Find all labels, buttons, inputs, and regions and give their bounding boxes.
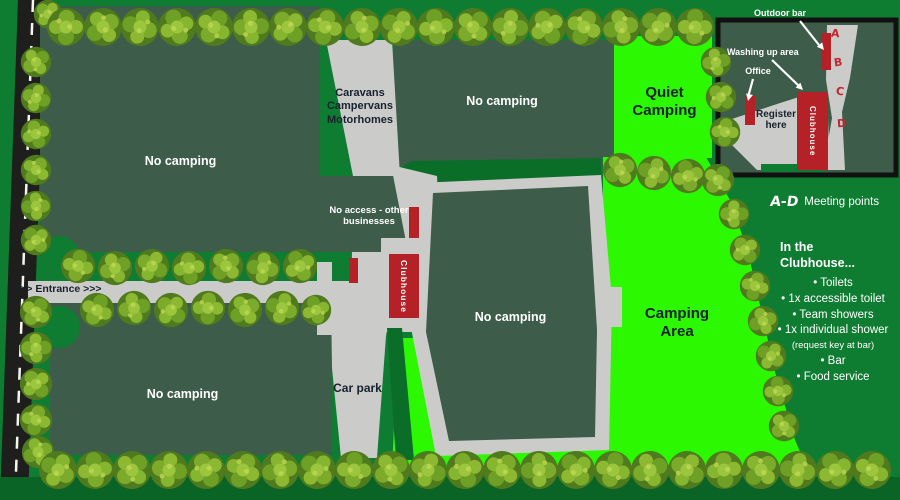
caravans-road-label: Caravans Campervans Motorhomes (318, 87, 402, 127)
no-camping-label-top-left: No camping (88, 154, 273, 169)
clubhouse-info-item: • Toilets (770, 276, 896, 291)
meeting-point-A: A (830, 27, 840, 41)
outdoor-bar-label: Outdoor bar (752, 8, 808, 18)
register-here-label: Register here (752, 109, 800, 131)
clubhouse-info-item-note: (request key at bar) (792, 340, 874, 351)
camping-area-label: Camping Area (612, 305, 742, 340)
no-access-label: No access - other businesses (318, 205, 420, 227)
clubhouse-info-list: • Toilets• 1x accessible toilet• Team sh… (770, 276, 896, 384)
meeting-range-icon: A-D (769, 194, 800, 210)
no-camping-label-top-center: No camping (407, 94, 597, 109)
washing-up-area-label: Washing up area (727, 47, 812, 57)
clubhouse-info-item: • Food service (770, 370, 896, 385)
office-building (349, 258, 358, 283)
meeting-points-legend: A-D Meeting points (770, 194, 879, 210)
clubhouse-info-item: • Team showers (770, 308, 896, 323)
clubhouse-info-item: • Bar (770, 354, 896, 369)
no-camping-label-center: No camping (418, 310, 603, 325)
meeting-points-caption: Meeting points (804, 196, 879, 208)
office-label: Office (741, 66, 775, 76)
entrance-label: >>> Entrance >>> (14, 283, 154, 295)
campsite-map: No camping No camping No camping No camp… (0, 0, 900, 500)
clubhouse-info-title: In the Clubhouse... (770, 240, 896, 271)
clubhouse-info-item: • 1x individual shower (request key at b… (770, 323, 896, 352)
clubhouse-info-item: • 1x accessible toilet (770, 292, 896, 307)
clubhouse-label: Clubhouse (389, 254, 419, 318)
car-park-label: Car park (320, 381, 395, 395)
clubhouse-info-panel: In the Clubhouse... • Toilets• 1x access… (770, 240, 896, 385)
inset-clubhouse-label: Clubhouse (797, 92, 828, 170)
meeting-point-B: B (833, 55, 843, 69)
meeting-point-D: D (836, 117, 846, 131)
quiet-camping-label: Quiet Camping (612, 84, 717, 119)
no-camping-label-bottom-left: No camping (90, 387, 275, 402)
